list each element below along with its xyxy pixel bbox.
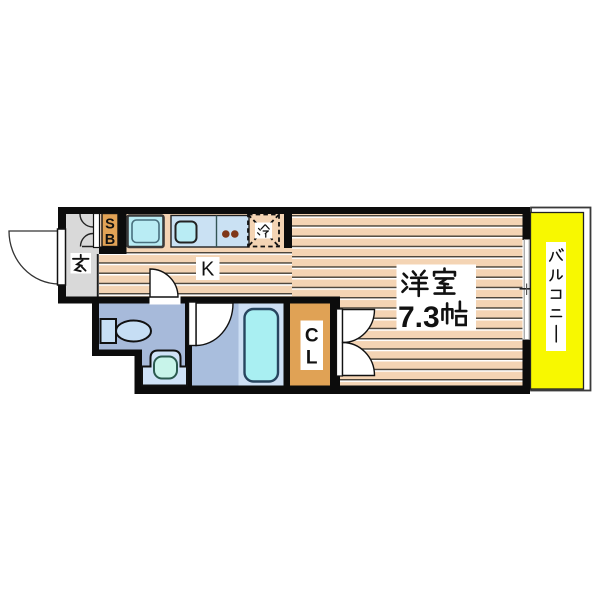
- svg-text:B: B: [105, 232, 115, 248]
- svg-text:K: K: [201, 259, 215, 281]
- svg-text:C: C: [305, 326, 319, 347]
- svg-text:L: L: [306, 348, 318, 369]
- svg-text:S: S: [105, 217, 115, 233]
- svg-text:7.3: 7.3: [398, 301, 440, 334]
